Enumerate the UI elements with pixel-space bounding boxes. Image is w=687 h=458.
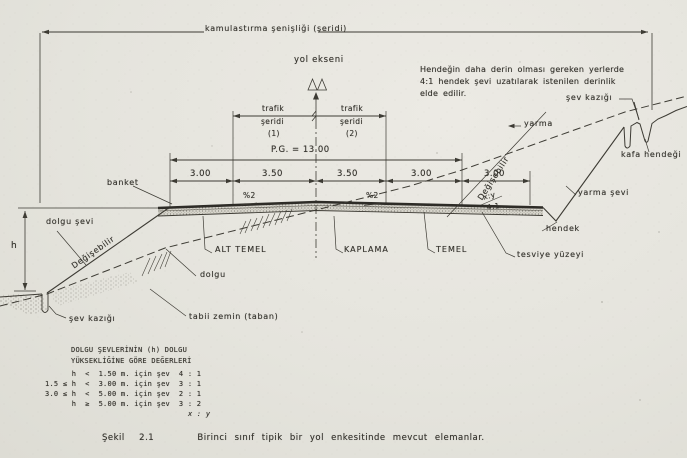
fill-label: dolgu (200, 270, 226, 279)
cut-label: yarma (524, 119, 553, 128)
natural-ground-label: tabii zemin (taban) (189, 312, 279, 321)
slope-table-title-line1: DOLGU ŞEVLERİNİN (h) DOLGU (71, 346, 187, 354)
crossfall-right-label: %2 (366, 191, 379, 200)
slope-table-footer: x : y (188, 410, 210, 418)
surfacing-label: KAPLAMA (344, 245, 389, 254)
shoulder-label: banket (107, 178, 139, 187)
slope-table-row: 3.0 ≤ h < 5.00 m. için şev 2 : 1 (45, 390, 201, 398)
lane1-word2: şeridi (261, 117, 284, 126)
crossfall-left-label: %2 (243, 191, 256, 200)
figure-caption: Şekil 2.1 Birinci sınıf tipik bir yol en… (102, 433, 485, 443)
slope-stake-left-label: şev kazığı (69, 314, 115, 323)
ditch-slope-ratio-label: 4:1 (486, 201, 500, 212)
grading-surface-label: tesviye yüzeyi (517, 250, 584, 259)
lane1-number: (1) (268, 129, 280, 138)
dim-segment-1: 3.00 (190, 169, 211, 179)
road-axis-label: yol ekseni (294, 55, 344, 65)
slope-table-row: 1.5 ≤ h < 3.00 m. için şev 3 : 1 (45, 380, 201, 388)
dim-segment-3: 3.50 (337, 169, 358, 179)
slope-table-row: h < 1.50 m. için şev 4 : 1 (45, 370, 201, 378)
slope-table-title-line2: YÜKSEKLİĞİNE GÖRE DEĞERLERİ (71, 357, 192, 365)
lane2-word1: trafik (341, 104, 363, 113)
scanned-figure-page: kamulastırma şenişliği (şeridi) yol ekse… (0, 0, 687, 458)
lane1-word1: trafik (262, 104, 284, 113)
ditch-note-line1: Hendeğin daha derin olması gereken yerle… (420, 65, 624, 74)
slope-table-row: h ≥ 5.00 m. için şev 3 : 2 (45, 400, 201, 408)
lane2-number: (2) (346, 129, 358, 138)
expropriation-width-label: kamulastırma şenişliği (şeridi) (205, 24, 319, 33)
dim-segment-2: 3.50 (262, 169, 283, 179)
fill-slope-label: dolgu şevi (46, 217, 94, 226)
ditch-note-line3: elde edilir. (420, 89, 466, 98)
head-ditch-label: kafa hendeği (621, 150, 681, 159)
base-label: TEMEL (436, 245, 467, 254)
slope-stake-right-label: şev kazığı (566, 93, 612, 102)
subbase-label: ALT TEMEL (215, 245, 267, 254)
lane2-word2: şeridi (340, 117, 363, 126)
dim-segment-4: 3.00 (411, 169, 432, 179)
ditch-label: hendek (546, 224, 580, 233)
platform-width-label: P.G. = 13.00 (271, 145, 330, 155)
ditch-note-line2: 4:1 hendek şevi uzatılarak istenilen der… (420, 77, 616, 86)
fill-height-label: h (11, 241, 17, 251)
cut-slope-label: yarma şevi (578, 188, 629, 197)
